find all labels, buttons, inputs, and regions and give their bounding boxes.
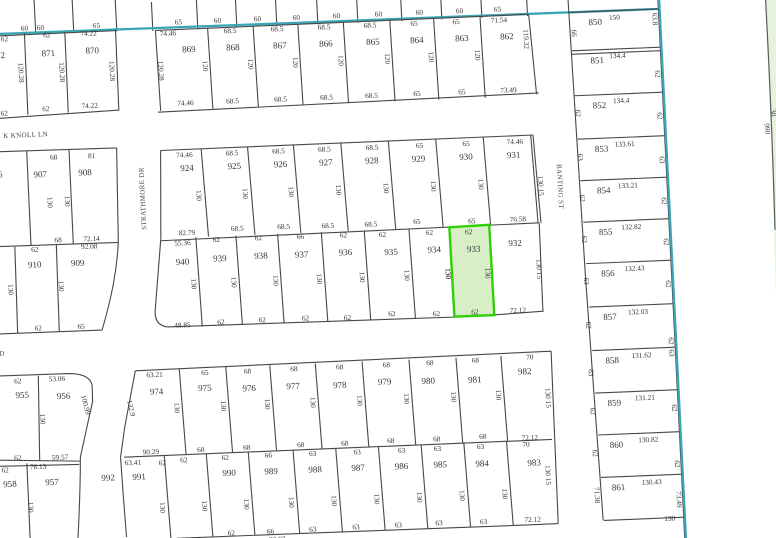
svg-text:130: 130 <box>329 495 339 507</box>
svg-text:63: 63 <box>352 522 360 531</box>
svg-text:68.5: 68.5 <box>364 219 378 229</box>
svg-text:65: 65 <box>452 17 460 26</box>
svg-text:68.5: 68.5 <box>274 94 288 104</box>
svg-text:81: 81 <box>88 151 96 160</box>
svg-text:65: 65 <box>77 322 85 331</box>
svg-text:62: 62 <box>580 235 589 243</box>
svg-text:74.46: 74.46 <box>176 150 193 160</box>
svg-text:68.5: 68.5 <box>363 20 377 30</box>
svg-text:76.58: 76.58 <box>509 214 526 224</box>
svg-text:63: 63 <box>582 277 591 285</box>
svg-text:134.4: 134.4 <box>613 96 630 106</box>
svg-text:130: 130 <box>38 413 48 425</box>
svg-text:130: 130 <box>200 500 210 512</box>
svg-text:74.46: 74.46 <box>160 28 177 38</box>
svg-text:62: 62 <box>667 337 676 345</box>
svg-text:62: 62 <box>660 197 669 205</box>
svg-text:855: 855 <box>599 226 613 237</box>
svg-text:130: 130 <box>372 493 382 505</box>
svg-text:63: 63 <box>353 447 361 456</box>
svg-text:62: 62 <box>655 112 664 120</box>
svg-text:65: 65 <box>416 141 424 150</box>
svg-text:931: 931 <box>507 150 521 161</box>
svg-text:68: 68 <box>197 445 205 454</box>
svg-text:990: 990 <box>763 123 773 135</box>
svg-text:933: 933 <box>467 244 481 255</box>
svg-text:134.4: 134.4 <box>609 51 626 61</box>
svg-text:130: 130 <box>287 186 297 198</box>
svg-text:924: 924 <box>180 163 194 174</box>
svg-text:974: 974 <box>150 386 164 397</box>
svg-text:929: 929 <box>411 153 425 164</box>
svg-text:62: 62 <box>1 34 9 43</box>
svg-text:62: 62 <box>42 104 50 113</box>
svg-text:68: 68 <box>433 434 441 443</box>
svg-text:986: 986 <box>394 461 408 472</box>
svg-text:65: 65 <box>494 5 502 14</box>
svg-text:130: 130 <box>483 267 493 279</box>
svg-text:62: 62 <box>673 460 682 468</box>
svg-text:130: 130 <box>381 182 391 194</box>
svg-text:74.22: 74.22 <box>81 101 98 111</box>
svg-text:939: 939 <box>213 253 227 264</box>
svg-text:74.22: 74.22 <box>80 28 97 38</box>
svg-text:938: 938 <box>254 250 268 261</box>
svg-text:72.12: 72.12 <box>509 305 526 315</box>
svg-text:977: 977 <box>286 381 300 392</box>
svg-text:989: 989 <box>264 466 278 477</box>
svg-text:984: 984 <box>475 458 489 469</box>
svg-text:68: 68 <box>243 443 251 452</box>
svg-text:73.49: 73.49 <box>500 85 517 95</box>
svg-text:60: 60 <box>21 23 29 32</box>
svg-text:863: 863 <box>455 33 469 44</box>
svg-text:928: 928 <box>365 155 379 166</box>
svg-text:130: 130 <box>308 397 318 409</box>
svg-text:985: 985 <box>433 459 447 470</box>
svg-text:130: 130 <box>172 402 182 414</box>
svg-text:120: 120 <box>383 53 393 65</box>
svg-text:65: 65 <box>413 89 421 98</box>
svg-text:975: 975 <box>198 383 212 394</box>
svg-text:63: 63 <box>435 518 443 527</box>
svg-text:68.5: 68.5 <box>223 26 237 36</box>
svg-text:982: 982 <box>518 366 532 377</box>
svg-text:130: 130 <box>458 490 468 502</box>
svg-text:130: 130 <box>241 188 251 200</box>
svg-text:978: 978 <box>333 380 347 391</box>
svg-text:132.82: 132.82 <box>621 222 642 232</box>
svg-text:68: 68 <box>426 358 434 367</box>
svg-text:65: 65 <box>410 19 418 28</box>
svg-text:150: 150 <box>609 12 621 21</box>
svg-text:956: 956 <box>57 391 71 402</box>
svg-text:871: 871 <box>41 48 55 59</box>
svg-text:858: 858 <box>605 355 619 366</box>
svg-text:68.5: 68.5 <box>225 148 239 158</box>
svg-text:66: 66 <box>264 451 272 460</box>
svg-text:62: 62 <box>14 453 22 462</box>
svg-text:979: 979 <box>378 376 392 387</box>
svg-text:120: 120 <box>201 60 211 72</box>
svg-text:62: 62 <box>662 238 671 246</box>
svg-text:130: 130 <box>242 499 252 511</box>
svg-text:864: 864 <box>410 35 424 46</box>
svg-text:60: 60 <box>333 11 341 20</box>
svg-text:130.82: 130.82 <box>638 435 659 445</box>
svg-text:120: 120 <box>336 55 346 67</box>
svg-text:130: 130 <box>402 270 412 282</box>
svg-text:854: 854 <box>597 185 611 196</box>
svg-text:983: 983 <box>527 457 541 468</box>
svg-text:63: 63 <box>586 369 595 377</box>
svg-text:63: 63 <box>309 524 317 533</box>
svg-text:63: 63 <box>667 349 676 357</box>
svg-text:130: 130 <box>194 190 204 202</box>
svg-text:867: 867 <box>273 40 287 51</box>
svg-text:130: 130 <box>358 271 368 283</box>
svg-text:62: 62 <box>388 309 396 318</box>
svg-text:930: 930 <box>459 151 473 162</box>
svg-text:68: 68 <box>341 438 349 447</box>
svg-text:130: 130 <box>494 389 504 401</box>
svg-text:130: 130 <box>219 400 229 412</box>
svg-text:68: 68 <box>383 360 391 369</box>
svg-text:120.28: 120.28 <box>156 60 166 81</box>
svg-text:62: 62 <box>43 30 51 39</box>
svg-text:130 15: 130 15 <box>543 465 553 486</box>
svg-text:65: 65 <box>462 139 470 148</box>
svg-text:120.28: 120.28 <box>57 62 67 83</box>
svg-text:130: 130 <box>402 393 412 405</box>
svg-text:55.36: 55.36 <box>174 238 191 248</box>
svg-text:68.5: 68.5 <box>365 91 379 101</box>
svg-text:62: 62 <box>465 227 473 236</box>
svg-text:62: 62 <box>255 233 263 242</box>
svg-text:130 15: 130 15 <box>534 259 544 280</box>
svg-text:63: 63 <box>434 444 442 453</box>
svg-text:68.5: 68.5 <box>317 22 331 32</box>
svg-text:63: 63 <box>394 520 402 529</box>
svg-text:132.03: 132.03 <box>628 307 649 317</box>
svg-text:868: 868 <box>226 42 240 53</box>
svg-text:48.85: 48.85 <box>174 320 191 330</box>
svg-text:62: 62 <box>227 528 235 537</box>
svg-text:63: 63 <box>658 156 667 164</box>
svg-text:71.54: 71.54 <box>491 15 508 25</box>
svg-text:130 15: 130 15 <box>536 176 546 197</box>
svg-text:63.41: 63.41 <box>124 458 141 468</box>
svg-text:853: 853 <box>595 143 609 154</box>
svg-text:120: 120 <box>246 58 256 70</box>
svg-text:130: 130 <box>664 514 676 523</box>
svg-text:119.32: 119.32 <box>521 29 531 49</box>
svg-text:68: 68 <box>50 153 58 162</box>
svg-text:932: 932 <box>508 238 522 249</box>
svg-text:909: 909 <box>71 258 85 269</box>
svg-text:865: 865 <box>366 36 380 47</box>
svg-text:68: 68 <box>387 436 395 445</box>
svg-text:980: 980 <box>421 375 435 386</box>
svg-text:987: 987 <box>351 462 365 473</box>
svg-text:62: 62 <box>31 245 39 254</box>
svg-text:130: 130 <box>26 501 36 513</box>
svg-text:851: 851 <box>590 55 604 66</box>
svg-text:62: 62 <box>340 230 348 239</box>
svg-text:926: 926 <box>273 159 287 170</box>
svg-text:976: 976 <box>242 383 256 394</box>
svg-text:861: 861 <box>612 482 626 493</box>
svg-text:60: 60 <box>214 16 222 25</box>
svg-text:860: 860 <box>609 439 623 450</box>
svg-text:62: 62 <box>302 313 310 322</box>
svg-text:869: 869 <box>182 44 196 55</box>
svg-text:130: 130 <box>315 273 325 285</box>
svg-text:62: 62 <box>574 109 583 117</box>
svg-text:130 15: 130 15 <box>543 388 553 409</box>
svg-text:63: 63 <box>309 449 317 458</box>
svg-text:72.12: 72.12 <box>524 515 541 525</box>
svg-text:60: 60 <box>254 14 262 23</box>
svg-text:68.5: 68.5 <box>270 24 284 34</box>
svg-text:130: 130 <box>263 398 273 410</box>
svg-text:130: 130 <box>6 284 16 296</box>
svg-text:62: 62 <box>670 404 679 412</box>
svg-text:62: 62 <box>34 323 42 332</box>
svg-text:988: 988 <box>308 464 322 475</box>
svg-text:62: 62 <box>584 321 593 329</box>
svg-text:65: 65 <box>175 17 183 26</box>
svg-text:63: 63 <box>477 442 485 451</box>
svg-text:60: 60 <box>293 13 301 22</box>
svg-text:62: 62 <box>471 307 479 316</box>
svg-text:65: 65 <box>468 216 476 225</box>
svg-text:859: 859 <box>607 397 621 408</box>
svg-text:910: 910 <box>28 259 42 270</box>
svg-text:908: 908 <box>78 167 92 178</box>
svg-text:63.8: 63.8 <box>650 12 660 25</box>
svg-text:130: 130 <box>500 488 510 500</box>
svg-text:990: 990 <box>222 468 236 479</box>
svg-text:130: 130 <box>229 277 239 289</box>
svg-text:937: 937 <box>295 249 309 260</box>
svg-text:62: 62 <box>221 453 229 462</box>
svg-text:981: 981 <box>468 374 482 385</box>
svg-text:62: 62 <box>14 376 22 385</box>
svg-text:62: 62 <box>379 230 387 239</box>
svg-text:866: 866 <box>319 38 333 49</box>
svg-text:68.5: 68.5 <box>277 222 291 232</box>
svg-text:68: 68 <box>297 440 305 449</box>
svg-text:68.5: 68.5 <box>365 142 379 152</box>
svg-text:130: 130 <box>415 492 425 504</box>
svg-text:62: 62 <box>159 458 167 467</box>
svg-text:65: 65 <box>458 87 466 96</box>
svg-text:133.61: 133.61 <box>614 139 635 149</box>
svg-text:850: 850 <box>588 17 602 28</box>
svg-text:958: 958 <box>3 479 17 490</box>
svg-text:68: 68 <box>336 362 344 371</box>
svg-text:62: 62 <box>213 235 221 244</box>
svg-text:130: 130 <box>443 268 453 280</box>
svg-text:992: 992 <box>101 472 115 483</box>
svg-text:936: 936 <box>338 247 352 258</box>
svg-text:62: 62 <box>180 455 188 464</box>
svg-text:53.06: 53.06 <box>48 374 65 384</box>
svg-text:68.5: 68.5 <box>318 144 332 154</box>
svg-text:68: 68 <box>290 364 298 373</box>
svg-text:130: 130 <box>287 497 297 509</box>
svg-text:92.08: 92.08 <box>81 241 98 251</box>
svg-text:131.62: 131.62 <box>631 350 652 360</box>
svg-text:73.49: 73.49 <box>674 491 684 508</box>
svg-text:68: 68 <box>479 432 487 441</box>
svg-text:63: 63 <box>576 153 585 161</box>
svg-text:62: 62 <box>217 317 225 326</box>
svg-text:62: 62 <box>426 228 434 237</box>
svg-text:68: 68 <box>244 366 252 375</box>
svg-text:857: 857 <box>603 311 617 322</box>
svg-text:68.5: 68.5 <box>272 146 286 156</box>
svg-text:62: 62 <box>258 315 266 324</box>
svg-text:131.21: 131.21 <box>635 393 656 403</box>
svg-text:120.28: 120.28 <box>16 62 26 83</box>
svg-text:935: 935 <box>384 247 398 258</box>
svg-text:120: 120 <box>291 57 301 69</box>
svg-text:60: 60 <box>456 6 464 15</box>
svg-text:D: D <box>0 350 5 358</box>
svg-text:66: 66 <box>297 232 305 241</box>
svg-text:62: 62 <box>433 309 441 318</box>
svg-text:130: 130 <box>158 502 168 514</box>
svg-text:907: 907 <box>33 169 47 180</box>
svg-text:957: 957 <box>45 477 59 488</box>
svg-text:130: 130 <box>476 179 486 191</box>
svg-text:68: 68 <box>54 235 62 244</box>
svg-text:74.46: 74.46 <box>506 137 523 147</box>
svg-text:130: 130 <box>334 184 344 196</box>
svg-text:68.5: 68.5 <box>320 92 334 102</box>
svg-text:68.5: 68.5 <box>226 96 240 106</box>
svg-text:130: 130 <box>449 391 459 403</box>
svg-text:130: 130 <box>429 180 439 192</box>
svg-text:66: 66 <box>570 29 579 37</box>
svg-text:30: 30 <box>769 109 776 117</box>
svg-text:59.57: 59.57 <box>52 452 69 462</box>
svg-text:927: 927 <box>319 157 333 168</box>
svg-text:62: 62 <box>653 70 662 78</box>
svg-text:130: 130 <box>189 278 199 290</box>
svg-text:70: 70 <box>522 440 530 449</box>
svg-text:60: 60 <box>375 9 383 18</box>
svg-text:130: 130 <box>355 395 365 407</box>
svg-text:130.43: 130.43 <box>641 477 662 487</box>
svg-text:934: 934 <box>427 244 441 255</box>
svg-text:120: 120 <box>473 49 483 61</box>
svg-text:120: 120 <box>427 51 437 63</box>
svg-text:63: 63 <box>398 446 406 455</box>
svg-text:63.21: 63.21 <box>146 370 163 380</box>
svg-text:38.97: 38.97 <box>269 534 286 538</box>
svg-text:71.38: 71.38 <box>592 487 602 504</box>
svg-text:130: 130 <box>271 275 281 287</box>
svg-text:63: 63 <box>480 517 488 526</box>
svg-text:65: 65 <box>201 368 209 377</box>
svg-text:872: 872 <box>0 50 5 61</box>
svg-text:940: 940 <box>176 256 190 267</box>
svg-text:62: 62 <box>591 449 600 457</box>
svg-text:955: 955 <box>15 390 29 401</box>
svg-text:870: 870 <box>85 45 99 56</box>
svg-text:65: 65 <box>413 217 421 226</box>
svg-text:68.5: 68.5 <box>231 224 245 234</box>
svg-text:925: 925 <box>227 161 241 172</box>
svg-text:991: 991 <box>132 471 146 482</box>
svg-text:90.29: 90.29 <box>142 447 159 457</box>
svg-text:852: 852 <box>592 100 606 111</box>
svg-text:130: 130 <box>45 197 55 209</box>
svg-text:74.46: 74.46 <box>177 98 194 108</box>
svg-text:130: 130 <box>63 196 73 208</box>
svg-text:68: 68 <box>472 355 480 364</box>
svg-text:62: 62 <box>578 194 587 202</box>
svg-text:82.79: 82.79 <box>179 228 196 238</box>
svg-text:68.5: 68.5 <box>321 221 335 231</box>
svg-text:133.21: 133.21 <box>618 180 639 190</box>
svg-text:62: 62 <box>0 109 8 118</box>
svg-text:132.43: 132.43 <box>624 263 645 273</box>
svg-text:62: 62 <box>1 465 9 474</box>
svg-text:62: 62 <box>344 313 352 322</box>
svg-text:862: 862 <box>500 31 514 42</box>
svg-text:130: 130 <box>57 280 67 292</box>
svg-text:62: 62 <box>664 280 673 288</box>
svg-text:70: 70 <box>526 352 534 361</box>
svg-text:78.13: 78.13 <box>30 462 47 472</box>
svg-text:856: 856 <box>601 268 615 279</box>
svg-text:120.28: 120.28 <box>107 61 117 82</box>
svg-text:62: 62 <box>588 407 597 415</box>
svg-text:60: 60 <box>416 8 424 17</box>
